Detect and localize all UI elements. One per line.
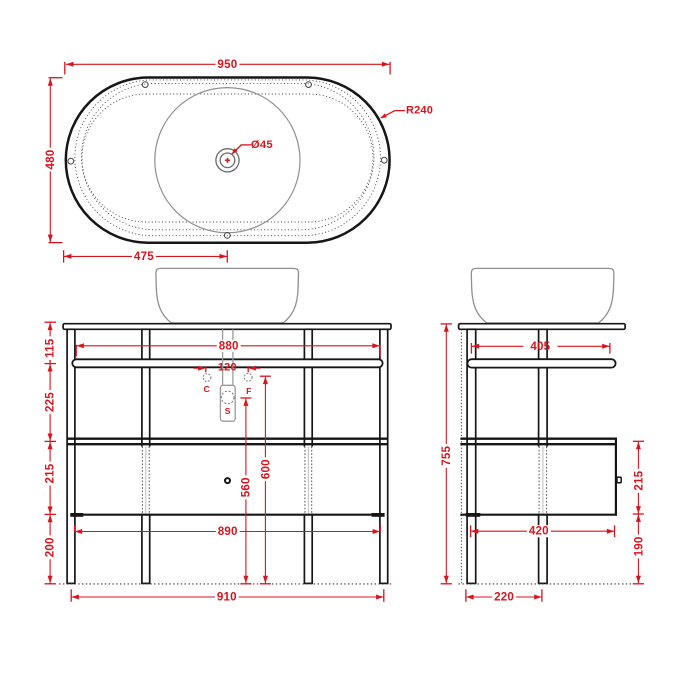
svg-text:910: 910: [217, 591, 237, 604]
svg-text:890: 890: [218, 525, 238, 538]
svg-text:560: 560: [240, 477, 253, 497]
svg-text:950: 950: [217, 58, 237, 71]
svg-text:600: 600: [259, 459, 272, 479]
svg-text:880: 880: [219, 339, 239, 352]
svg-text:475: 475: [134, 250, 154, 263]
svg-text:215: 215: [44, 463, 57, 483]
svg-text:F: F: [246, 386, 252, 396]
svg-text:190: 190: [632, 536, 645, 556]
svg-text:405: 405: [530, 340, 550, 353]
svg-text:480: 480: [44, 150, 57, 170]
svg-text:Ø45: Ø45: [251, 139, 273, 151]
svg-text:200: 200: [44, 537, 57, 557]
svg-text:220: 220: [494, 591, 514, 604]
svg-text:115: 115: [44, 338, 57, 358]
svg-text:C: C: [204, 384, 211, 394]
svg-text:215: 215: [632, 470, 645, 490]
svg-text:120: 120: [218, 361, 237, 373]
svg-text:755: 755: [440, 445, 453, 465]
svg-text:S: S: [225, 406, 231, 416]
svg-text:225: 225: [44, 392, 57, 412]
svg-text:420: 420: [529, 525, 549, 538]
svg-text:R240: R240: [406, 105, 433, 117]
